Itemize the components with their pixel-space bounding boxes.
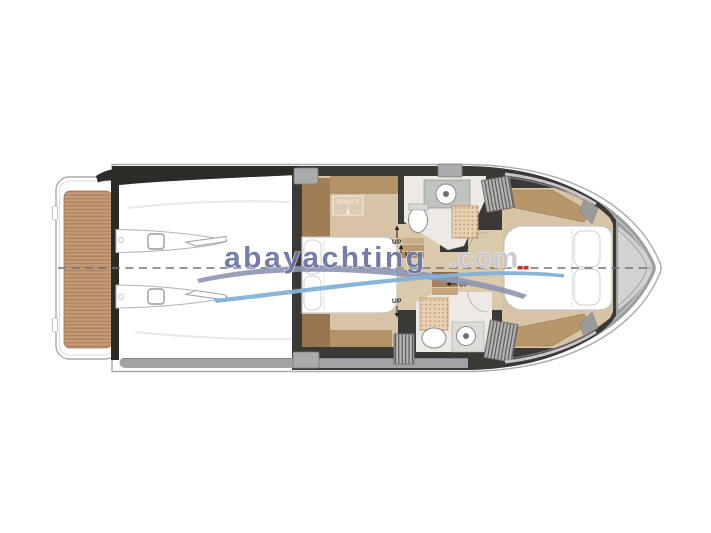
red-marker: [524, 266, 529, 270]
louver-grate: [484, 320, 518, 362]
engine-hatch: [148, 289, 164, 304]
sink-drain: [463, 333, 469, 339]
pillow: [574, 231, 600, 267]
louver-grate: [394, 334, 414, 364]
toilet: [422, 328, 446, 348]
shower-mat: [420, 298, 448, 330]
yacht-floorplan-image: BEAUTY UP UP UP UP abayachting .com: [0, 0, 711, 533]
stair-tread: [432, 288, 458, 295]
deck-hatch: [438, 164, 462, 177]
sink-drain: [443, 191, 449, 197]
up-text: UP: [392, 298, 402, 305]
watermark-suffix: .com: [449, 243, 519, 275]
teak-deck: [64, 191, 112, 348]
toilet-tank: [409, 204, 428, 210]
engine-hatch: [148, 234, 164, 249]
louver-grate: [481, 176, 514, 212]
stern-cleat: [53, 318, 58, 332]
beauty-text: BEAUTY: [336, 200, 359, 206]
cabinet-top-left: [302, 178, 330, 238]
deck-plan-svg: BEAUTY UP UP UP UP abayachting .com: [0, 0, 711, 533]
beauty-label: BEAUTY: [333, 196, 363, 215]
shower-mat: [452, 206, 478, 238]
stern-cleat: [53, 206, 58, 220]
mount-dot: [119, 238, 124, 243]
wardrobe-top: [330, 176, 398, 194]
toilet: [409, 208, 428, 233]
cabinet-bottom-left: [302, 314, 330, 347]
mount-dot: [119, 295, 124, 300]
side-gate-step: [293, 352, 319, 368]
side-gate-step: [294, 168, 318, 184]
watermark-brand: abayachting: [224, 242, 427, 275]
pillow: [574, 269, 600, 305]
wardrobe-bottom: [330, 330, 392, 347]
pillow: [304, 276, 321, 310]
